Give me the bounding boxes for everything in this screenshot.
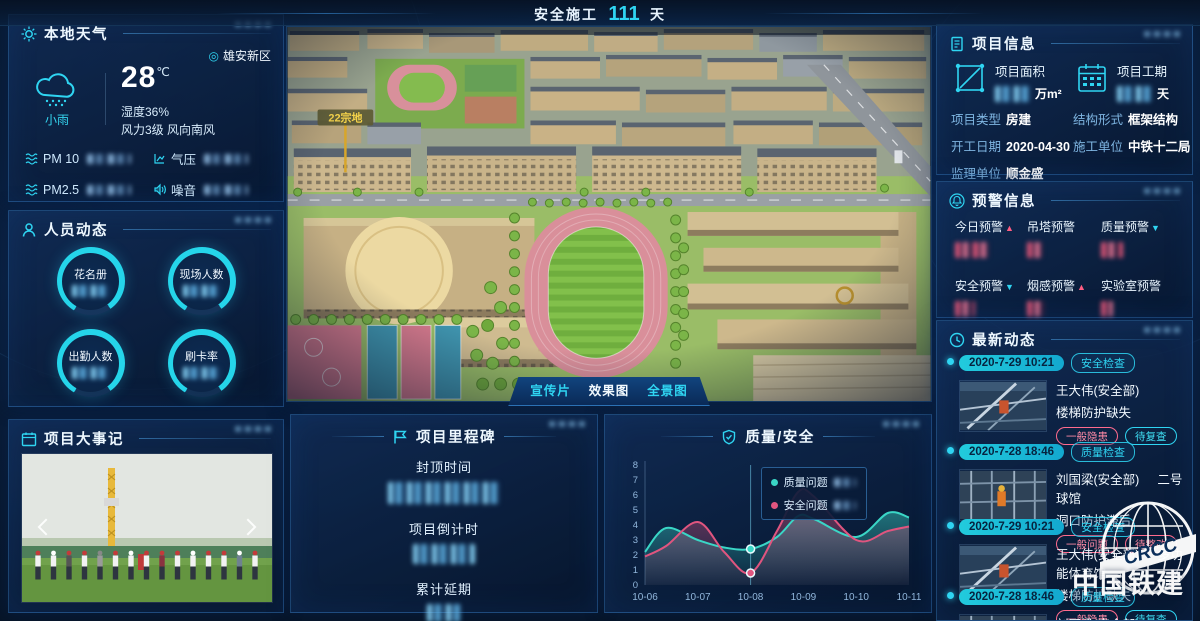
project-area-stat: 项目面积 万m²: [953, 61, 1062, 102]
warning-info-panel: 预警信息 今日预警▲ 吊塔预警 质量预警▼ 安全预警▼ 烟感预警▲ 实验室预警: [936, 181, 1193, 318]
shield-check-icon: [721, 429, 737, 445]
svg-text:2: 2: [633, 550, 638, 561]
blurred-value: [427, 604, 461, 621]
panel-title: 人员动态: [44, 219, 108, 240]
panel-title: 最新动态: [972, 329, 1036, 350]
svg-text:0: 0: [633, 580, 638, 591]
panel-title-line: [1051, 43, 1180, 44]
panel-title-line: [1051, 339, 1180, 340]
sun-icon: [21, 26, 37, 42]
bell-icon: [949, 193, 965, 209]
ring-onsite-count: 现场人数: [168, 247, 236, 315]
temperature: 28℃: [121, 61, 170, 95]
safe-construction-label: 安全施工: [534, 7, 598, 23]
svg-text:7: 7: [633, 475, 638, 486]
ring-attendance-count: 出勤人数: [57, 329, 125, 397]
pressure-gauge-icon: [153, 152, 166, 165]
timeline-dot-icon: [947, 447, 954, 454]
document-icon: [949, 36, 965, 52]
project-milestone-panel: 项目里程碑 封顶时间 项目倒计时 累计延期: [290, 414, 598, 613]
svg-text:5: 5: [633, 505, 638, 516]
svg-text:10-06: 10-06: [632, 592, 658, 603]
blurred-value: [183, 367, 221, 379]
warning-today: 今日预警▲: [955, 218, 1027, 263]
location-icon: ◎: [209, 49, 219, 63]
panel-decor: [1144, 327, 1180, 333]
location-badge: ◎雄安新区: [209, 47, 272, 64]
pm-waves-icon: [25, 152, 38, 165]
timeline-dot-icon: [947, 592, 954, 599]
blurred-value: [204, 154, 248, 164]
svg-text:3: 3: [633, 535, 638, 546]
blurred-value: [72, 285, 110, 297]
blurred-value: [87, 185, 131, 195]
quality-safety-panel: 质量/安全 01234567810-0610-0710-0810-0910-10…: [604, 414, 932, 613]
tooltip-quality-row: 质量问题: [771, 474, 857, 490]
timeline-dot-icon: [947, 522, 954, 529]
divider: [105, 73, 106, 125]
decor-line: [823, 436, 875, 437]
news-date-badge: 2020-7-28 18:46: [959, 444, 1064, 460]
blurred-count: [1027, 242, 1043, 258]
blurred-value: [87, 154, 131, 164]
calendar-icon: [1075, 61, 1109, 95]
quality-series-dot: [771, 479, 778, 486]
weather-condition: 小雨: [33, 111, 81, 128]
blurred-count: [1101, 242, 1123, 258]
flag-icon: [392, 429, 408, 445]
inspection-photo: [959, 380, 1047, 432]
panel-title-line: [123, 229, 271, 230]
blurred-value: [72, 367, 110, 379]
svg-text:8: 8: [633, 460, 638, 471]
svg-text:10-08: 10-08: [738, 592, 764, 603]
tooltip-safety-row: 安全问题: [771, 497, 857, 513]
panel-decor: [549, 421, 585, 427]
metric-pm25: PM2.5: [25, 180, 153, 199]
personnel-panel: 人员动态 花名册 现场人数 出勤人数 刷卡率: [8, 210, 284, 407]
news-issue: 楼梯防护缺失: [1056, 402, 1177, 421]
field-project-type: 项目类型房建: [951, 109, 1073, 128]
news-date-badge: 2020-7-29 10:21: [959, 519, 1064, 535]
field-structure-type: 结构形式框架结构: [1073, 109, 1193, 128]
safety-series-dot: [771, 502, 778, 509]
warning-quality: 质量预警▼: [1101, 218, 1187, 263]
blurred-count: [955, 301, 975, 317]
panel-title: 项目大事记: [44, 428, 124, 449]
svg-text:10-11: 10-11: [897, 592, 921, 603]
top-header-bar: 安全施工 111 天: [0, 0, 1200, 26]
news-item[interactable]: 2020-7-28 18:46 质量检查 刘国梁(安全部): [959, 587, 1186, 621]
blurred-date: [388, 482, 500, 504]
decor-line: [332, 436, 384, 437]
warning-tower-crane: 吊塔预警: [1027, 218, 1101, 263]
ring-roster: 花名册: [57, 247, 125, 315]
blurred-value: [834, 478, 856, 487]
blurred-value: [995, 86, 1031, 102]
person-icon: [21, 222, 37, 238]
topping-out-time: 封顶时间: [291, 457, 597, 509]
project-duration-stat: 项目工期 天: [1075, 61, 1169, 102]
svg-text:10-10: 10-10: [843, 592, 869, 603]
panel-title-line: [123, 33, 271, 34]
speaker-icon: [153, 183, 166, 196]
panel-decor: [1144, 188, 1180, 194]
panel-title: 项目里程碑: [416, 426, 496, 447]
inspection-photo: [959, 469, 1047, 521]
ring-card-swipe-rate: 刷卡率: [168, 329, 236, 397]
news-item[interactable]: 2020-7-29 10:21 安全检查 王大伟(安全部) 楼梯防护缺失 一般隐…: [959, 353, 1186, 445]
city-3d-view-panel: 22宗地 宣传片 效果图 全景图: [286, 26, 932, 402]
weather-metrics: PM 10 气压 PM2.5 噪音: [25, 149, 273, 199]
blurred-count: [955, 242, 989, 258]
panel-title: 预警信息: [972, 190, 1036, 211]
warning-lab: 实验室预警: [1101, 277, 1187, 322]
news-category-badge: 安全检查: [1071, 517, 1135, 537]
news-category-badge: 质量检查: [1071, 587, 1135, 607]
svg-text:4: 4: [633, 520, 638, 531]
metric-noise: 噪音: [153, 180, 273, 199]
cumulative-delay: 累计延期: [291, 579, 597, 621]
svg-text:10-07: 10-07: [685, 592, 711, 603]
blurred-count: [1027, 301, 1045, 317]
humidity: 湿度36%: [121, 103, 169, 120]
latest-updates-panel: 最新动态 2020-7-29 10:21 安全检查 王大伟(安全部) 楼梯防护缺…: [936, 320, 1193, 621]
news-person: 王大伟(安全部): [1056, 380, 1177, 399]
field-contractor: 施工单位中铁十二局: [1073, 136, 1193, 155]
project-milestone-events-panel: 项目大事记: [8, 419, 284, 613]
decor-line: [504, 436, 556, 437]
metric-pm10: PM 10: [25, 149, 153, 168]
svg-text:1: 1: [633, 565, 638, 576]
panel-decor: [235, 426, 271, 432]
news-date-badge: 2020-7-28 18:46: [959, 589, 1064, 605]
warning-safety: 安全预警▼: [955, 277, 1027, 322]
promo-video-button[interactable]: 宣传片: [530, 380, 571, 399]
news-category-badge: 安全检查: [1071, 353, 1135, 373]
timeline-dot-icon: [947, 358, 954, 365]
panorama-button[interactable]: 全景图: [647, 380, 688, 399]
project-info-panel: 项目信息 项目面积 万m² 项目工期 天: [936, 24, 1193, 175]
field-supervisor: 监理单位顺金盛: [951, 163, 1073, 182]
scene-view-switcher: 宣传片 效果图 全景图: [508, 377, 710, 406]
metric-pressure: 气压: [153, 149, 273, 168]
blurred-value: [1117, 86, 1153, 102]
inspection-photo: [959, 614, 1047, 621]
panel-title-line: [139, 438, 271, 439]
wind: 风力3级 风向南风: [121, 121, 215, 138]
local-weather-panel: 本地天气 ◎雄安新区 小雨 28℃ 湿度36% 风力3级 风向南风 PM 10 …: [8, 14, 284, 202]
warning-smoke: 烟感预警▲: [1027, 277, 1101, 322]
news-date-badge: 2020-7-29 10:21: [959, 355, 1064, 371]
panel-title: 本地天气: [44, 23, 108, 44]
panel-title-line: [1051, 200, 1180, 201]
event-photo[interactable]: [21, 453, 273, 603]
render-view-button[interactable]: 效果图: [589, 380, 630, 399]
decor-line: [661, 436, 713, 437]
blurred-value: [204, 185, 248, 195]
blurred-value: [183, 285, 221, 297]
news-category-badge: 质量检查: [1071, 442, 1135, 462]
calendar-icon: [21, 431, 37, 447]
safe-construction-days: 安全施工 111 天: [0, 3, 1200, 26]
days-count: 111: [608, 3, 639, 25]
project-countdown: 项目倒计时: [291, 519, 597, 569]
svg-text:10-09: 10-09: [791, 592, 817, 603]
clock-icon: [949, 332, 965, 348]
panel-title: 质量/安全: [745, 426, 815, 447]
panel-decor: [883, 421, 919, 427]
chart-tooltip: 质量问题 安全问题: [761, 467, 867, 520]
svg-text:6: 6: [633, 490, 638, 501]
city-3d-view[interactable]: 22宗地: [287, 27, 931, 401]
blurred-value: [413, 544, 475, 564]
area-icon: [953, 61, 987, 95]
days-unit: 天: [650, 7, 666, 23]
groundbreaking-photo: [22, 454, 273, 603]
field-start-date: 开工日期2020-04-30: [951, 136, 1073, 155]
panel-decor: [1144, 31, 1180, 37]
rain-cloud-icon: [33, 71, 81, 109]
panel-decor: [235, 217, 271, 223]
blurred-count: [1101, 301, 1113, 317]
news-person: 刘国梁(安全部): [1056, 614, 1157, 621]
pm-waves-icon: [25, 183, 38, 196]
panel-title: 项目信息: [972, 33, 1036, 54]
blurred-value: [834, 501, 856, 510]
news-person: 刘国梁(安全部)二号球馆: [1056, 469, 1186, 507]
news-person: 王大伟(安全部)多功能体育馆: [1056, 544, 1186, 582]
